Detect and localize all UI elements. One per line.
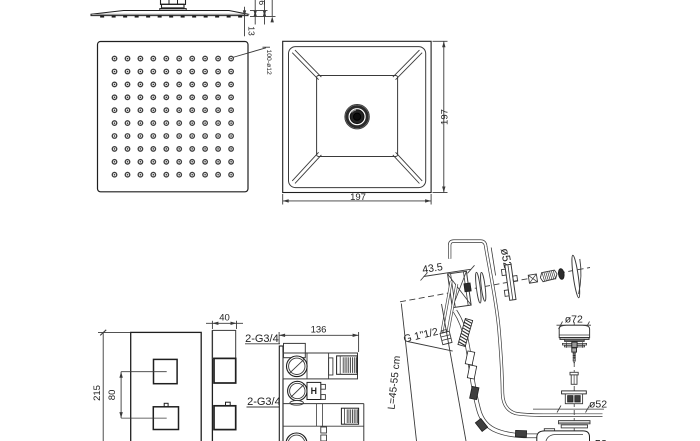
svg-text:ø52: ø52 [589,398,607,410]
svg-text:197: 197 [439,109,450,125]
svg-text:ø72: ø72 [565,313,583,325]
svg-text:100-ø12: 100-ø12 [265,50,272,76]
svg-text:H: H [311,386,317,396]
svg-text:197: 197 [350,192,366,203]
svg-text:136: 136 [311,324,327,335]
svg-text:215: 215 [92,385,103,401]
svg-text:6: 6 [257,0,267,5]
svg-text:2-G3/4: 2-G3/4 [245,333,279,345]
svg-text:13: 13 [246,26,256,36]
svg-text:2-G3/4: 2-G3/4 [247,396,281,408]
svg-text:80: 80 [107,390,118,401]
svg-text:40: 40 [219,313,230,324]
